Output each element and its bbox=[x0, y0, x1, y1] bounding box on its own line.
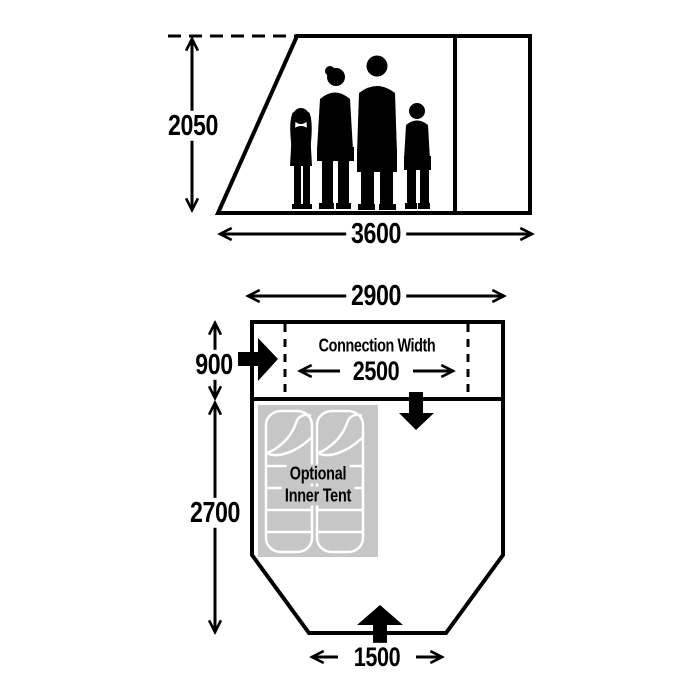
connection-width-title: Connection Width bbox=[319, 337, 436, 356]
connection-entry-arrow-icon bbox=[238, 338, 278, 381]
height-dimension-label: 2050 bbox=[163, 111, 223, 141]
tent-dimensions-diagram: 2050 3600 2900 900 Connection Width 2500… bbox=[0, 0, 700, 700]
family-silhouette bbox=[290, 56, 431, 211]
entrance-width-dimension-label: 1500 bbox=[349, 643, 405, 671]
top-width-dimension-label: 2900 bbox=[346, 281, 406, 311]
connection-width-value-label: 2500 bbox=[348, 357, 404, 385]
main-entrance-arrow-icon bbox=[357, 605, 403, 645]
man-silhouette bbox=[357, 56, 397, 211]
woman-silhouette bbox=[317, 66, 354, 209]
width-dimension-label: 3600 bbox=[346, 219, 406, 249]
main-depth-dimension-label: 2700 bbox=[185, 498, 245, 528]
inner-tent-label-line2: Inner Tent bbox=[282, 487, 355, 506]
inner-tent-label-line1: Optional bbox=[287, 465, 350, 484]
connection-depth-dimension-label: 900 bbox=[190, 350, 237, 380]
boy-silhouette bbox=[404, 103, 431, 209]
girl-silhouette bbox=[290, 108, 312, 209]
